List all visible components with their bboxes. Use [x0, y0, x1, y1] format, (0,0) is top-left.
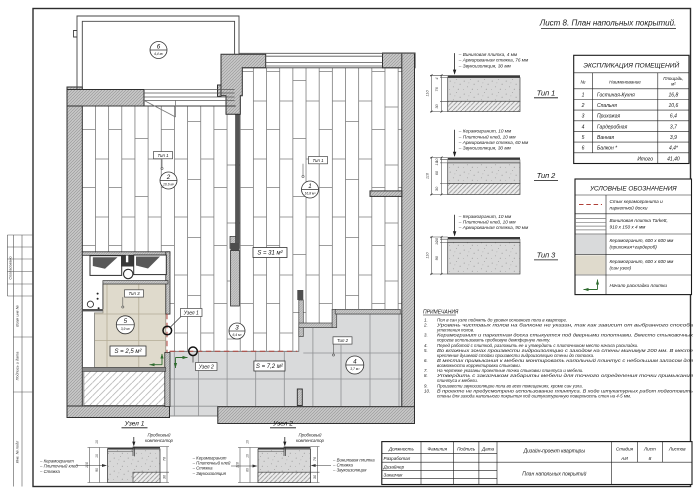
svg-text:– Армированная стяжка, 90 мм: – Армированная стяжка, 90 мм: [458, 225, 529, 230]
svg-text:– Плиточный клей, 10 мм: – Плиточный клей, 10 мм: [458, 218, 517, 224]
svg-text:2: 2: [581, 103, 585, 109]
svg-text:Инв. № подл: Инв. № подл: [16, 440, 20, 463]
svg-text:Пробковый: Пробковый: [298, 433, 322, 438]
svg-text:Спальня: Спальня: [597, 103, 617, 109]
svg-text:Тип 3: Тип 3: [537, 251, 556, 260]
svg-text:Тип 2: Тип 2: [537, 171, 556, 180]
svg-text:ПРИМЕЧАНИЯ: ПРИМЕЧАНИЯ: [423, 310, 459, 316]
svg-text:Итого: Итого: [637, 156, 653, 162]
svg-text:6,4 м²: 6,4 м²: [232, 333, 242, 337]
svg-text:41,40: 41,40: [667, 156, 680, 162]
svg-text:16,8 м²: 16,8 м²: [305, 192, 317, 196]
svg-text:4: 4: [582, 124, 585, 130]
svg-text:10.: 10.: [424, 388, 430, 393]
svg-text:8.: 8.: [424, 373, 428, 378]
svg-text:Тип 3: Тип 3: [128, 291, 140, 296]
svg-text:Наименование: Наименование: [609, 80, 641, 85]
svg-text:– Звукоизоляция, 30 мм: – Звукоизоляция, 30 мм: [458, 146, 512, 151]
svg-text:– Армированная стяжка, 76 мм: – Армированная стяжка, 76 мм: [458, 58, 529, 63]
svg-text:3,7: 3,7: [670, 124, 677, 130]
svg-text:4,4 м²: 4,4 м²: [154, 52, 164, 56]
svg-text:Уровень чистовых полов на балк: Уровень чистовых полов на балконе не ука…: [437, 323, 694, 328]
svg-text:Начало раскладки плитки: Начало раскладки плитки: [610, 283, 668, 288]
svg-text:8: 8: [649, 456, 652, 462]
svg-text:Пробковый: Пробковый: [147, 433, 171, 438]
svg-text:Стык керамогранита и: Стык керамогранита и: [610, 199, 664, 204]
svg-text:АИ: АИ: [620, 456, 628, 462]
svg-text:Взам инв №: Взам инв №: [16, 305, 20, 326]
svg-text:Подпись и дата: Подпись и дата: [16, 352, 20, 381]
svg-text:110: 110: [425, 252, 430, 259]
svg-text:Дизайн-проект квартиры: Дизайн-проект квартиры: [523, 448, 586, 455]
svg-text:Узел 2: Узел 2: [272, 421, 293, 428]
svg-text:6: 6: [582, 146, 585, 152]
svg-text:110: 110: [425, 172, 430, 179]
svg-text:– Звукоизоляция: – Звукоизоляция: [192, 471, 227, 476]
svg-text:– Стяжка: – Стяжка: [39, 469, 60, 474]
svg-text:Гардеробная: Гардеробная: [597, 124, 628, 130]
svg-text:№: №: [581, 80, 586, 85]
svg-text:Узел 1: Узел 1: [124, 421, 145, 428]
svg-text:Балкон *: Балкон *: [597, 146, 618, 152]
svg-text:10: 10: [95, 440, 99, 444]
svg-text:– Звукоизоляция, 30 мм: – Звукоизоляция, 30 мм: [458, 63, 512, 68]
svg-text:110: 110: [425, 89, 430, 96]
svg-text:Площадь,: Площадь,: [663, 76, 683, 81]
svg-text:1: 1: [308, 183, 311, 190]
svg-text:– Керамогранит, 10 мм: – Керамогранит, 10 мм: [458, 214, 512, 219]
svg-text:Тип 1: Тип 1: [157, 153, 169, 158]
svg-text:Фамилия: Фамилия: [428, 447, 448, 452]
svg-text:S = 2,5 м²: S = 2,5 м²: [115, 349, 143, 355]
svg-text:Виниловая плитка Tarkett,: Виниловая плитка Tarkett,: [610, 218, 668, 223]
svg-text:– Керамогранит, 10 мм: – Керамогранит, 10 мм: [458, 129, 512, 134]
svg-text:– Плиточный клей, 10 мм: – Плиточный клей, 10 мм: [458, 133, 517, 139]
svg-text:Стадия: Стадия: [616, 447, 634, 452]
svg-text:6,4: 6,4: [670, 114, 677, 120]
svg-text:910 х 150 х 4 мм: 910 х 150 х 4 мм: [610, 224, 647, 229]
svg-text:5: 5: [124, 318, 128, 325]
svg-text:Подпись: Подпись: [457, 447, 476, 452]
svg-text:ЭКСПЛИКАЦИЯ ПОМЕЩЕНИЙ: ЭКСПЛИКАЦИЯ ПОМЕЩЕНИЙ: [583, 61, 679, 70]
svg-text:5.: 5.: [424, 348, 428, 353]
svg-text:Гостиная-Кухня: Гостиная-Кухня: [597, 92, 635, 98]
svg-text:4,4*: 4,4*: [669, 146, 679, 152]
svg-text:3,9: 3,9: [670, 135, 677, 141]
svg-text:(сан узел): (сан узел): [610, 265, 632, 270]
svg-text:10: 10: [246, 440, 250, 444]
svg-text:2: 2: [166, 174, 171, 181]
svg-text:компенсатор: компенсатор: [296, 438, 324, 443]
svg-text:3: 3: [235, 324, 239, 331]
svg-text:стены для захода напольного по: стены для захода напольного покрытия под…: [437, 393, 631, 398]
svg-text:10,6 м²: 10,6 м²: [163, 183, 175, 187]
svg-text:Узел 2: Узел 2: [199, 365, 214, 371]
svg-text:Дизайнер: Дизайнер: [383, 463, 405, 469]
svg-text:Лист 8. План напольных покрыти: Лист 8. План напольных покрытий.: [539, 19, 677, 28]
svg-text:Согласовано: Согласовано: [9, 256, 13, 279]
svg-text:3.: 3.: [424, 333, 428, 338]
svg-text:6.: 6.: [424, 358, 428, 363]
svg-text:1: 1: [582, 92, 585, 98]
svg-text:Должность: Должность: [388, 447, 415, 452]
svg-text:2.: 2.: [423, 323, 428, 328]
svg-text:3,7 м²: 3,7 м²: [350, 367, 360, 371]
svg-text:Керамогранит, 600 х 600 мм: Керамогранит, 600 х 600 мм: [610, 259, 675, 264]
svg-text:Заказчик: Заказчик: [384, 472, 404, 477]
svg-text:– Звукоизоляция: – Звукоизоляция: [332, 468, 367, 473]
svg-text:3: 3: [582, 114, 585, 120]
svg-text:S = 31 м²: S = 31 м²: [257, 251, 283, 257]
svg-text:УСЛОВНЫЕ ОБОЗНАЧЕНИЯ: УСЛОВНЫЕ ОБОЗНАЧЕНИЯ: [589, 186, 677, 193]
svg-text:5: 5: [582, 135, 585, 141]
svg-text:60: 60: [246, 468, 250, 472]
svg-text:Листов: Листов: [668, 447, 686, 452]
svg-text:План напольных покрытий: План напольных покрытий: [522, 471, 586, 478]
svg-text:90: 90: [95, 468, 99, 472]
svg-text:м²: м²: [671, 82, 676, 87]
svg-text:10,6: 10,6: [669, 103, 679, 109]
svg-text:S = 7,2 м²: S = 7,2 м²: [256, 364, 284, 370]
svg-text:Прихожая: Прихожая: [597, 114, 621, 120]
svg-text:10: 10: [95, 454, 99, 458]
svg-text:10: 10: [246, 454, 250, 458]
svg-text:компенсатор: компенсатор: [145, 438, 173, 443]
svg-text:110: 110: [85, 461, 89, 468]
svg-text:Лист: Лист: [643, 447, 656, 452]
svg-text:16,8: 16,8: [669, 92, 679, 98]
svg-text:(прихожая+гардероб): (прихожая+гардероб): [610, 245, 658, 250]
svg-text:– Армированная стяжка, 60 мм: – Армированная стяжка, 60 мм: [458, 140, 529, 145]
svg-text:паркетной доски: паркетной доски: [610, 205, 648, 211]
svg-text:Тип 2: Тип 2: [337, 338, 349, 343]
svg-text:Дата: Дата: [481, 447, 495, 452]
svg-text:Ванная: Ванная: [597, 135, 614, 141]
svg-text:Тип 1: Тип 1: [537, 88, 556, 97]
svg-text:110: 110: [236, 461, 240, 468]
svg-text:Керамогранит, 600 х 600 мм: Керамогранит, 600 х 600 мм: [610, 238, 675, 243]
svg-text:Тип 1: Тип 1: [312, 158, 324, 163]
svg-text:Разработал: Разработал: [384, 456, 411, 461]
svg-text:3,9 м²: 3,9 м²: [121, 327, 131, 331]
svg-text:Узел 1: Узел 1: [184, 311, 199, 317]
svg-text:4: 4: [353, 358, 357, 365]
svg-text:– Виниловая плитка, 4 мм: – Виниловая плитка, 4 мм: [458, 52, 518, 57]
svg-text:6: 6: [157, 43, 161, 50]
